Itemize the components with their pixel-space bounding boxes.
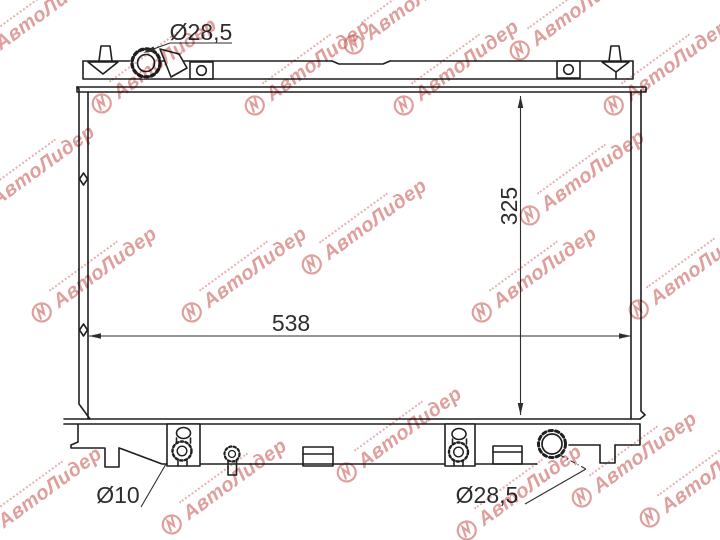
leader-outlet-pipe bbox=[525, 455, 586, 504]
label-drain-plug-diameter: Ø10 bbox=[96, 482, 139, 508]
dimension-width-538 bbox=[89, 333, 631, 339]
label-core-height: 325 bbox=[496, 187, 522, 225]
label-filler-neck-diameter: Ø28,5 bbox=[170, 19, 233, 45]
dimension-height-325 bbox=[518, 96, 524, 415]
right-side-strip bbox=[631, 90, 645, 419]
radiator-drawing-page: Ø28,5 538 325 Ø10 Ø28,5 АвтоЛидерАвтоЛид… bbox=[0, 0, 720, 540]
radiator-diagram: Ø28,5 538 325 Ø10 Ø28,5 bbox=[0, 0, 720, 540]
top-tank-rail bbox=[77, 61, 646, 92]
bottom-left-bracket bbox=[303, 447, 333, 466]
filler-neck bbox=[130, 47, 187, 79]
label-outlet-pipe-diameter: Ø28,5 bbox=[456, 482, 519, 508]
outlet-pipe bbox=[536, 428, 569, 461]
top-right-bracket bbox=[557, 61, 580, 78]
lower-right-fitting bbox=[445, 424, 475, 466]
top-right-tab bbox=[602, 46, 629, 79]
bottom-right-bracket bbox=[493, 446, 522, 464]
petcock-bolt bbox=[225, 447, 240, 476]
top-left-bracket bbox=[190, 62, 213, 79]
radiator-outline bbox=[64, 46, 646, 475]
top-left-tab bbox=[88, 46, 118, 74]
leader-drain-plug bbox=[141, 464, 166, 507]
drain-plug bbox=[167, 424, 200, 466]
label-core-width: 538 bbox=[272, 310, 310, 336]
left-side-strip bbox=[77, 87, 90, 419]
